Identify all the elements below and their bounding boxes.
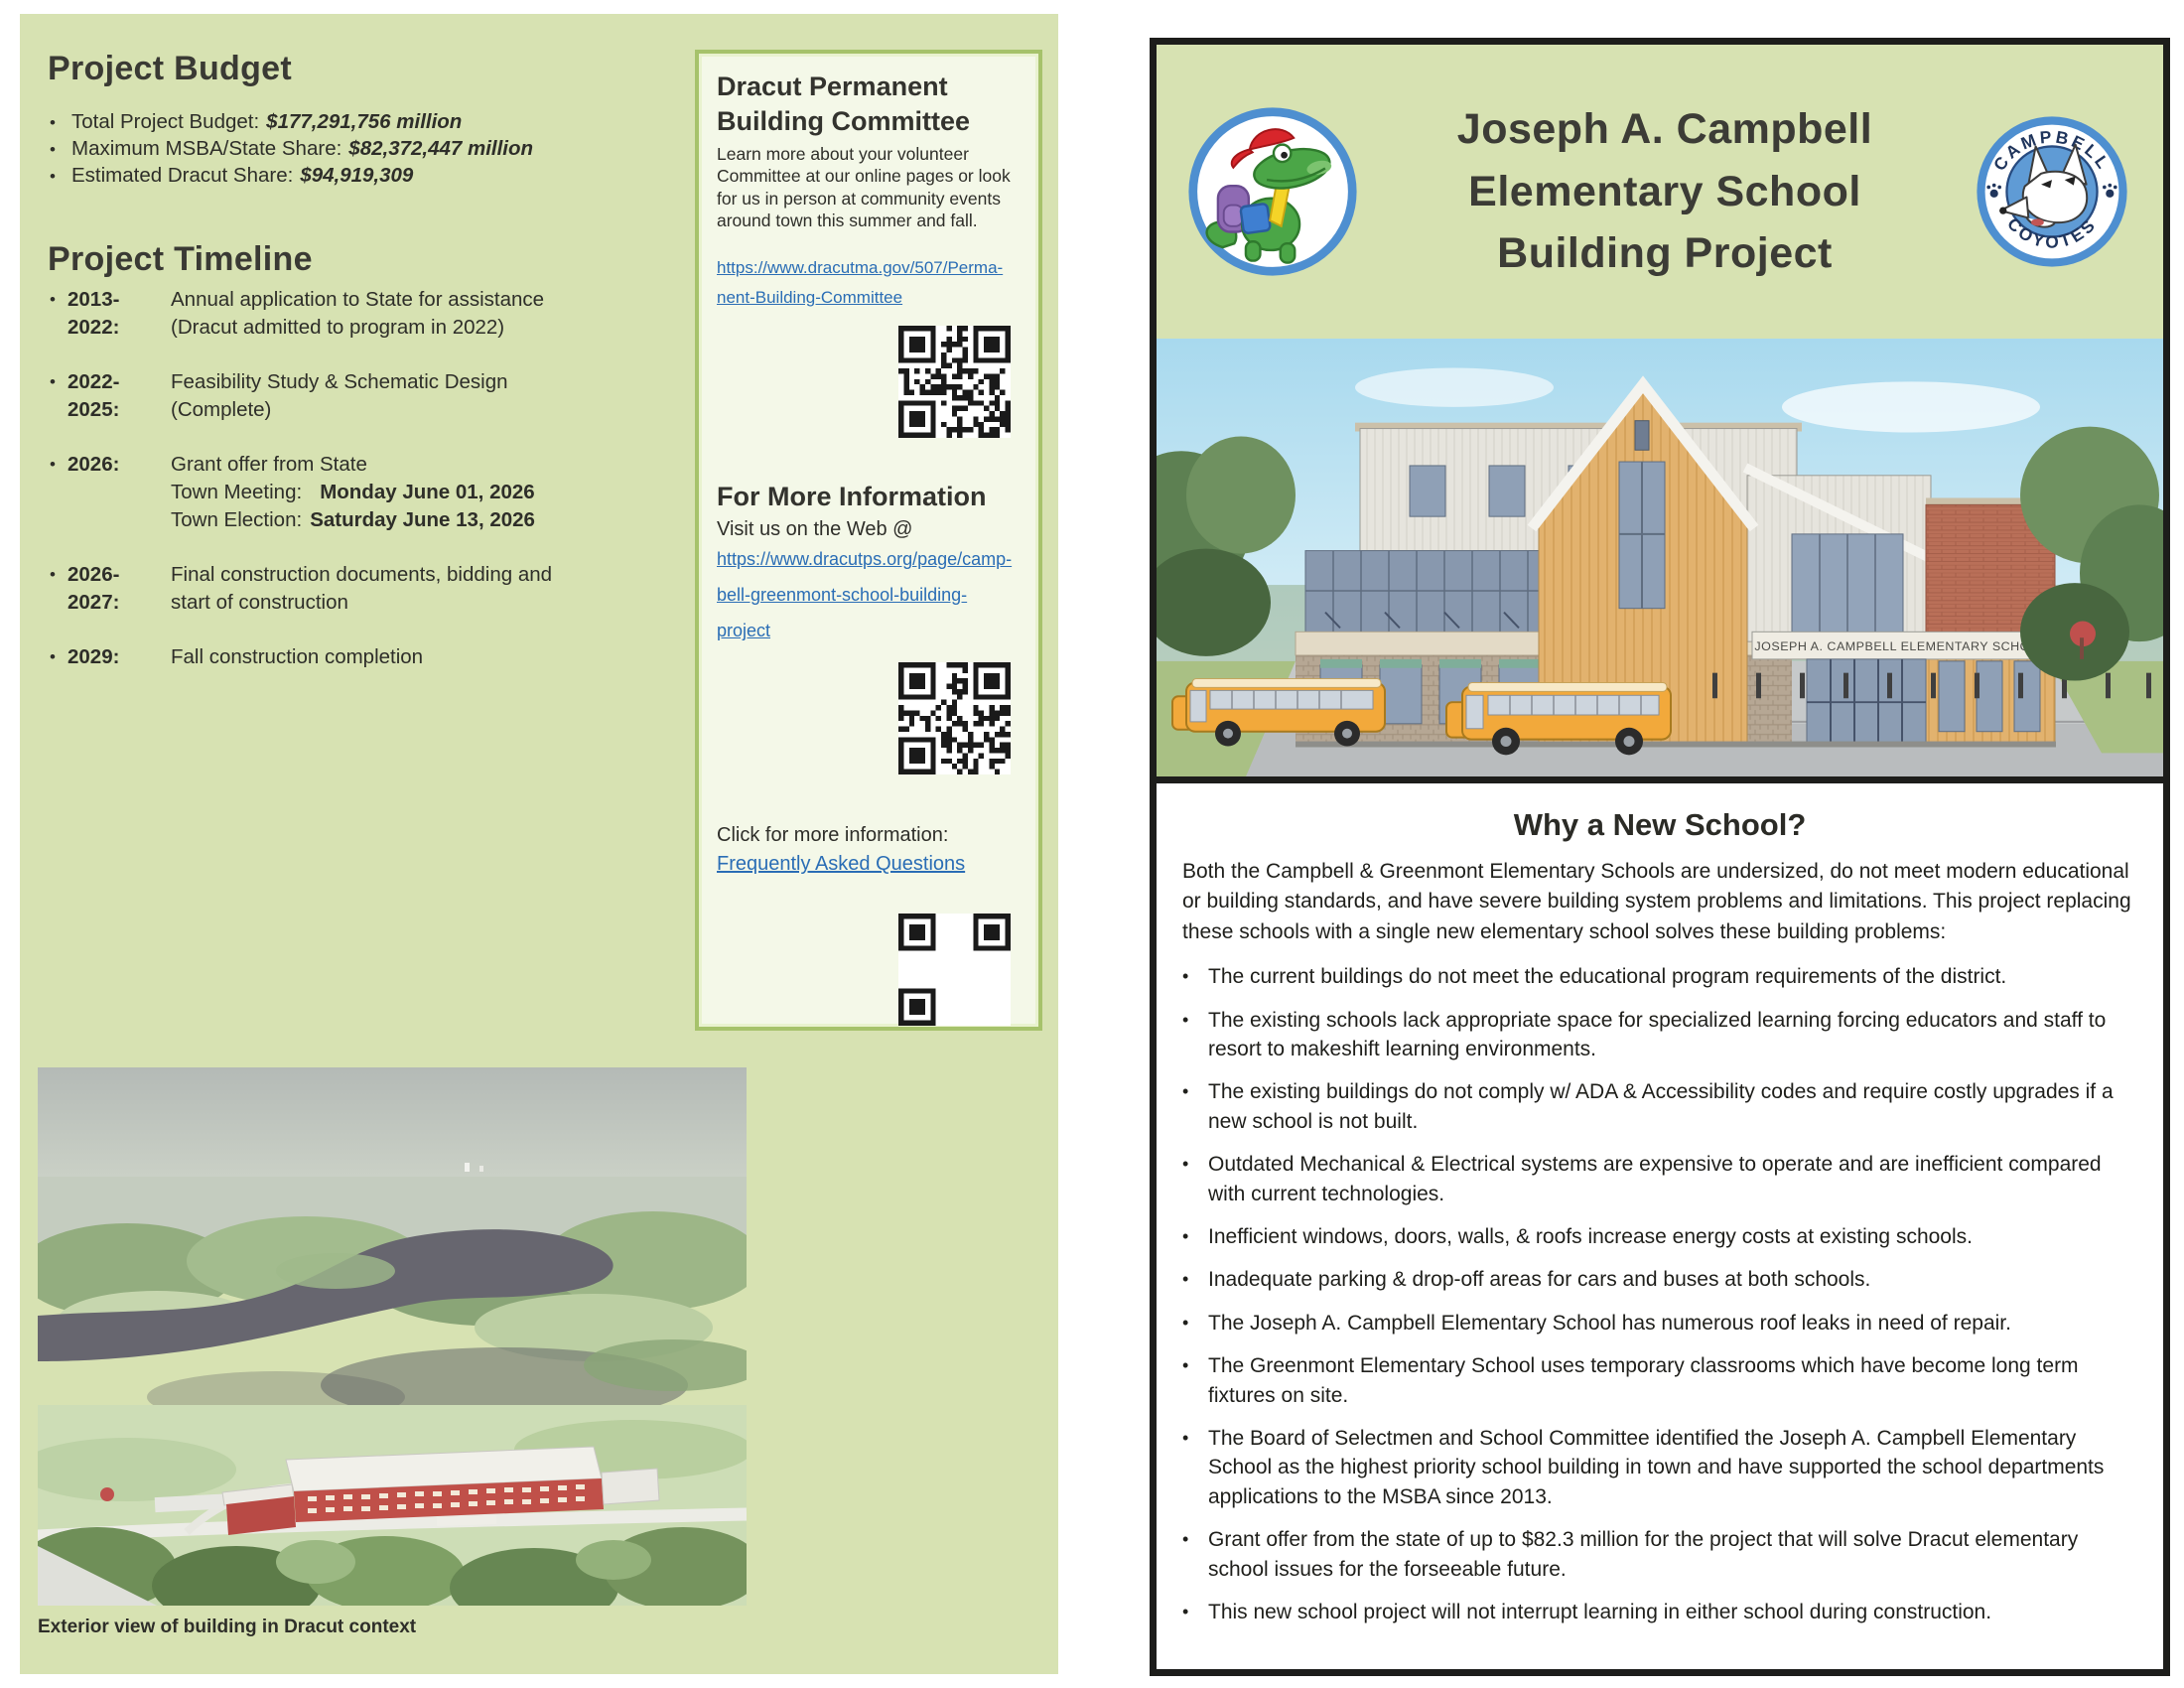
timeline-desc: Annual application to State for assistan…: [171, 286, 705, 342]
click-info-label: Click for more information:: [717, 824, 1021, 847]
committee-link: https://www.dracutma.gov/507/Perma- nent…: [717, 253, 1021, 313]
why-bullet: The Joseph A. Campbell Elementary School…: [1182, 1309, 2137, 1337]
why-bullet: Grant offer from the state of up to $82.…: [1182, 1525, 2137, 1584]
timeline-year: 2026:: [68, 451, 171, 534]
timeline-year: 2013-2022:: [68, 286, 171, 342]
project-timeline-title: Project Timeline: [48, 240, 313, 279]
why-new-school-section: Why a New School? Both the Campbell & Gr…: [1157, 783, 2163, 1626]
budget-item-value: $82,372,447 million: [348, 136, 533, 162]
why-bullet: Inadequate parking & drop-off areas for …: [1182, 1265, 2137, 1294]
building-rendering-svg: JOSEPH A. CAMPBELL ELEMENTARY SCHOOL: [1157, 339, 2163, 776]
why-bullet: The Greenmont Elementary School uses tem…: [1182, 1351, 2137, 1410]
more-info-title: For More Information: [717, 482, 1021, 512]
timeline-desc: Feasibility Study & Schematic Design (Co…: [171, 368, 705, 424]
qr-code: [898, 326, 1011, 438]
aerial-rendering-image: [38, 1067, 747, 1606]
why-bullet: Inefficient windows, doors, walls, & roo…: [1182, 1222, 2137, 1251]
why-bullet: The existing buildings do not comply w/ …: [1182, 1077, 2137, 1136]
budget-item-label: Maximum MSBA/State Share:: [71, 136, 341, 162]
budget-item-value: $177,291,756 million: [266, 109, 462, 135]
timeline-year: 2022-2025:: [68, 368, 171, 424]
why-intro: Both the Campbell & Greenmont Elementary…: [1182, 857, 2137, 947]
budget-item: Estimated Dracut Share: $94,919,309: [50, 163, 533, 190]
timeline-item: 2026: Grant offer from State Town Meetin…: [50, 451, 705, 534]
why-bullet: The Board of Selectmen and School Commit…: [1182, 1424, 2137, 1511]
web-label: Visit us on the Web @: [717, 518, 1021, 541]
timeline-desc: Grant offer from State Town Meeting:Mond…: [171, 451, 705, 534]
committee-box-title: Dracut Permanent Building Committee: [717, 70, 1021, 138]
timeline-desc: Final construction documents, bidding an…: [171, 561, 705, 617]
budget-item: Maximum MSBA/State Share: $82,372,447 mi…: [50, 136, 533, 163]
timeline-year: 2029:: [68, 643, 171, 671]
page-title: Joseph A. Campbell Elementary School Bui…: [1359, 98, 1971, 284]
gator-mascot-icon: [1186, 105, 1359, 278]
project-url-link[interactable]: https://www.dracutps.org/page/camp-: [717, 541, 1021, 577]
why-title: Why a New School?: [1182, 807, 2137, 843]
timeline-item: 2022-2025: Feasibility Study & Schematic…: [50, 368, 705, 424]
timeline-item: 2013-2022: Annual application to State f…: [50, 286, 705, 342]
budget-item-label: Total Project Budget:: [71, 109, 259, 135]
project-budget-list: Total Project Budget: $177,291,756 milli…: [50, 109, 533, 190]
committee-url-link[interactable]: https://www.dracutma.gov/507/Perma-: [717, 253, 1021, 283]
why-bullet-list: The current buildings do not meet the ed…: [1182, 962, 2137, 1626]
timeline-item: 2026-2027: Final construction documents,…: [50, 561, 705, 617]
project-web-link: https://www.dracutps.org/page/camp- bell…: [717, 541, 1021, 648]
right-brochure-page: Joseph A. Campbell Elementary School Bui…: [1150, 38, 2170, 1676]
why-bullet: This new school project will not interru…: [1182, 1598, 2137, 1626]
why-bullet: Outdated Mechanical & Electrical systems…: [1182, 1150, 2137, 1208]
qr-code: [898, 662, 1011, 774]
aerial-rendering-svg: [38, 1067, 747, 1606]
campbell-coyotes-badge-icon: CAMPBELL COYOTES: [1971, 110, 2133, 273]
aerial-caption: Exterior view of building in Dracut cont…: [38, 1617, 416, 1638]
project-timeline-list: 2013-2022: Annual application to State f…: [50, 286, 705, 698]
budget-item-value: $94,919,309: [300, 163, 413, 189]
why-bullet: The existing schools lack appropriate sp…: [1182, 1006, 2137, 1064]
budget-item-label: Estimated Dracut Share:: [71, 163, 293, 189]
timeline-year: 2026-2027:: [68, 561, 171, 617]
committee-info-box: Dracut Permanent Building Committee Lear…: [695, 50, 1042, 1031]
timeline-item: 2029: Fall construction completion: [50, 643, 705, 671]
left-brochure-page: Project Budget Total Project Budget: $17…: [20, 14, 1058, 1674]
project-budget-title: Project Budget: [48, 50, 292, 88]
why-bullet: The current buildings do not meet the ed…: [1182, 962, 2137, 991]
committee-box-intro: Learn more about your volunteer Committe…: [717, 143, 1021, 231]
faq-link[interactable]: Frequently Asked Questions: [717, 853, 1021, 876]
qr-code: [898, 914, 1011, 1026]
committee-url-link[interactable]: nent-Building-Committee: [717, 283, 1021, 313]
budget-item: Total Project Budget: $177,291,756 milli…: [50, 109, 533, 136]
timeline-desc: Fall construction completion: [171, 643, 705, 671]
building-rendering-image: JOSEPH A. CAMPBELL ELEMENTARY SCHOOL: [1157, 339, 2163, 783]
building-sign-text: JOSEPH A. CAMPBELL ELEMENTARY SCHOOL: [1754, 639, 2047, 653]
right-page-header: Joseph A. Campbell Elementary School Bui…: [1157, 45, 2163, 339]
project-url-link[interactable]: bell-greenmont-school-building-project: [717, 577, 1021, 648]
